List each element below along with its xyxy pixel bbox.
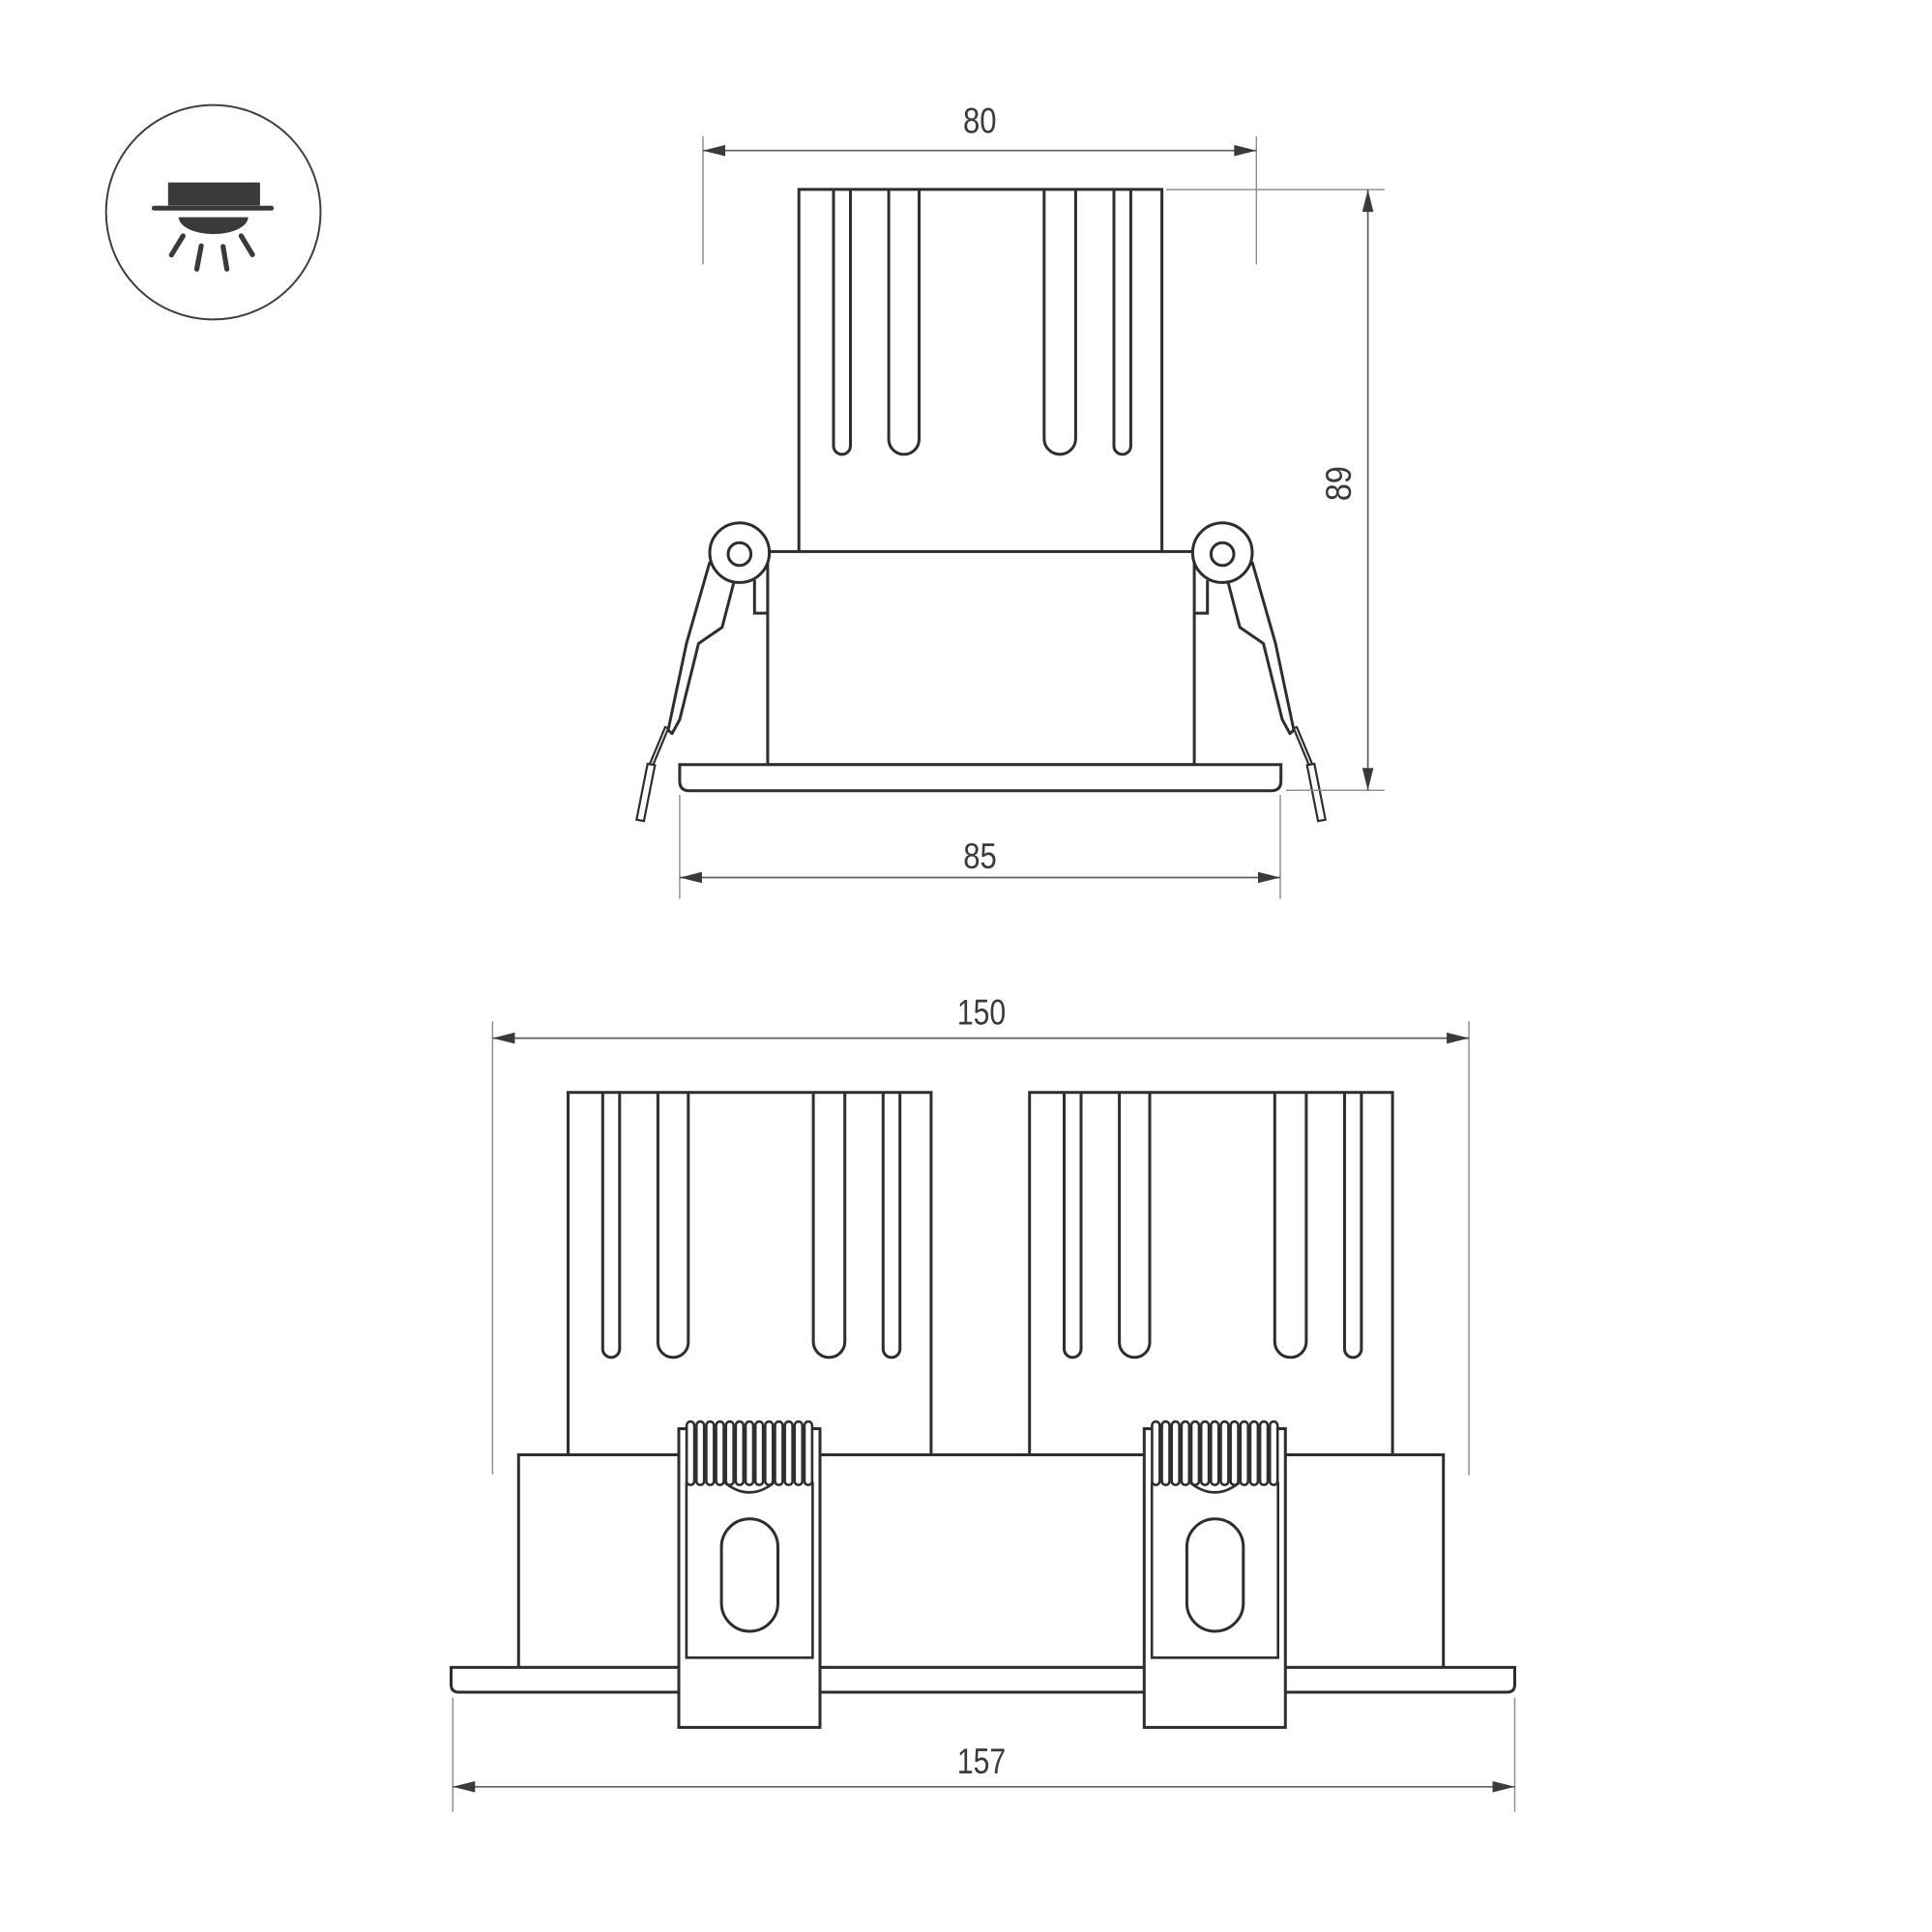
svg-text:150: 150 [957,992,1006,1032]
svg-text:85: 85 [963,836,997,876]
svg-text:89: 89 [1319,466,1359,501]
svg-text:80: 80 [963,102,997,141]
svg-text:157: 157 [957,1742,1006,1781]
